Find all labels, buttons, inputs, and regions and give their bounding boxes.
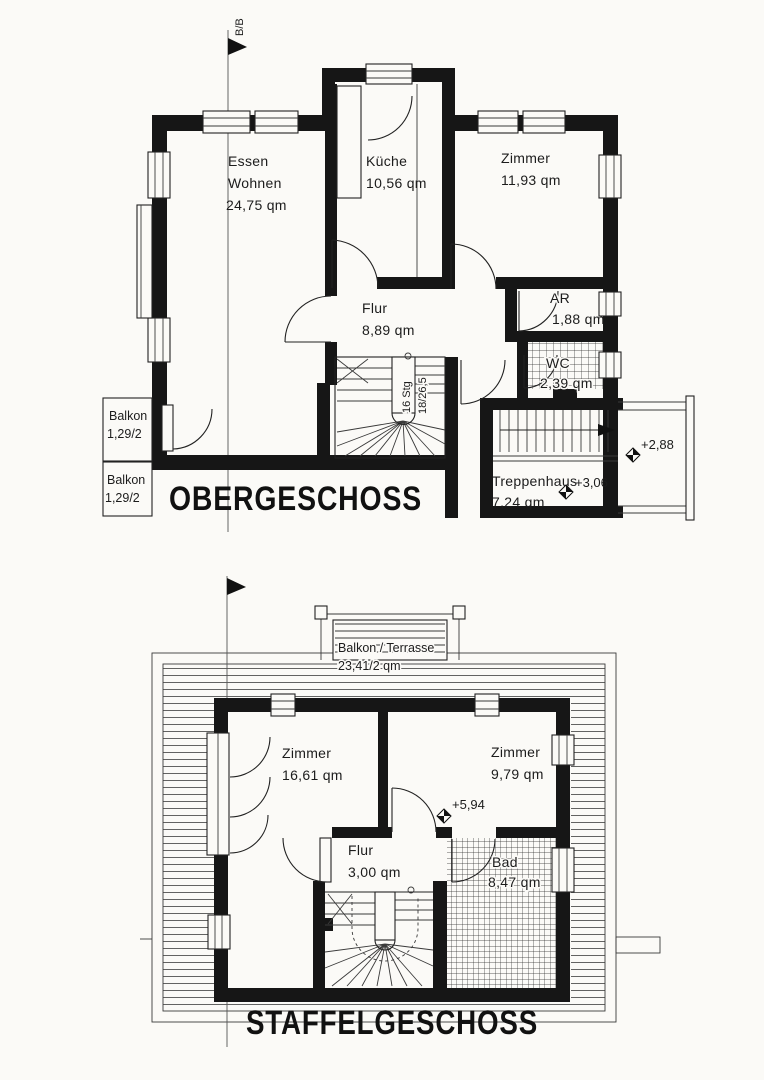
- room-label-zimmer-og: Zimmer: [501, 150, 550, 166]
- door-zimmer-flur: [283, 838, 331, 882]
- room-area-wc: 2,39 qm: [540, 375, 593, 391]
- balkon-label-1: Balkon: [109, 409, 147, 423]
- title-obergeschoss: OBERGESCHOSS: [169, 480, 422, 518]
- window: [255, 111, 298, 133]
- adjacent-structure: [616, 937, 660, 953]
- room-area-treppenhaus: 7,24 qm: [492, 494, 545, 510]
- chimney-outline: [137, 205, 152, 318]
- stairs-sg: [325, 887, 433, 986]
- room-area-kueche: 10,56 qm: [366, 175, 427, 191]
- obergeschoss-plan: B/B: [103, 18, 694, 532]
- window: [148, 318, 170, 362]
- title-staffelgeschoss: STAFFELGESCHOSS: [246, 1004, 538, 1042]
- room-area-bad: 8,47 qm: [488, 874, 541, 890]
- room-label-zimmer-links: Zimmer: [282, 745, 331, 761]
- room-label-flur-og: Flur: [362, 300, 387, 316]
- window: [552, 848, 574, 892]
- room-area-flur-sg: 3,00 qm: [348, 864, 401, 880]
- window: [203, 111, 250, 133]
- room-label-ar: AR: [550, 290, 570, 306]
- door-flur-landing: [461, 360, 505, 404]
- window: [208, 915, 230, 949]
- room-area-flur-og: 8,89 qm: [362, 322, 415, 338]
- stairs-og: 16 Stg 18/26,5: [335, 353, 445, 458]
- window: [271, 694, 295, 716]
- window: [478, 111, 518, 133]
- window: [523, 111, 565, 133]
- window: [599, 155, 621, 198]
- door-flur-kueche: [332, 240, 378, 288]
- door-flur-zimmer-rechts: [392, 788, 436, 832]
- room-label-treppenhaus: Treppenhaus: [492, 473, 577, 489]
- door-flur-zimmer: [451, 244, 496, 289]
- balkon-terrasse-area: 23,41/2 qm: [338, 659, 401, 673]
- kitchen-counter: [337, 86, 361, 198]
- level-text-288: +2,88: [641, 437, 674, 452]
- stair-note-rise: 18/26,5: [417, 377, 429, 414]
- room-area-ar: 1,88 qm: [552, 311, 605, 327]
- room-label-flur-sg: Flur: [348, 842, 373, 858]
- room-label-essen: Essen: [228, 153, 268, 169]
- door-balkon: [162, 405, 212, 451]
- door-kueche-entry: [368, 96, 412, 140]
- staffelgeschoss-plan: Balkon / Terrasse 23,41/2 qm Zimmer 16,6…: [140, 576, 660, 1047]
- room-area-zimmer-rechts: 9,79 qm: [491, 766, 544, 782]
- room-label-wohnen: Wohnen: [228, 175, 282, 191]
- level-marker-288: [626, 448, 640, 462]
- section-line-bb-lower: [227, 576, 246, 1047]
- window: [148, 152, 170, 198]
- section-flag-icon: [227, 578, 246, 595]
- balkon-terrasse-label: Balkon / Terrasse: [338, 641, 434, 655]
- floor-plan-sheet: B/B: [0, 0, 764, 1080]
- window: [552, 735, 574, 765]
- room-label-wc: WC: [546, 355, 570, 371]
- room-label-zimmer-rechts: Zimmer: [491, 744, 540, 760]
- plan-drawing: B/B: [0, 0, 764, 1080]
- section-line-bb: B/B: [228, 18, 247, 532]
- level-text-306: +3,06: [575, 475, 608, 490]
- window: [475, 694, 499, 716]
- room-area-essen-wohnen: 24,75 qm: [226, 197, 287, 213]
- window: [366, 64, 412, 84]
- room-label-bad: Bad: [492, 854, 518, 870]
- level-text-594: +5,94: [452, 797, 485, 812]
- balkon-label-2: Balkon: [107, 473, 145, 487]
- stair-note-steps: 16 Stg: [401, 381, 413, 413]
- room-area-zimmer-links: 16,61 qm: [282, 767, 343, 783]
- room-area-zimmer-og: 11,93 qm: [501, 172, 561, 188]
- level-marker-594: [437, 809, 451, 823]
- door-wohnen-flur: [285, 296, 331, 342]
- section-flag-icon: [228, 38, 247, 55]
- balkon-area-2: 1,29/2: [105, 491, 140, 505]
- balkon-area-1: 1,29/2: [107, 427, 142, 441]
- room-label-kueche: Küche: [366, 153, 407, 169]
- window: [599, 352, 621, 378]
- folding-window-doors: [207, 733, 270, 855]
- section-label: B/B: [234, 18, 246, 36]
